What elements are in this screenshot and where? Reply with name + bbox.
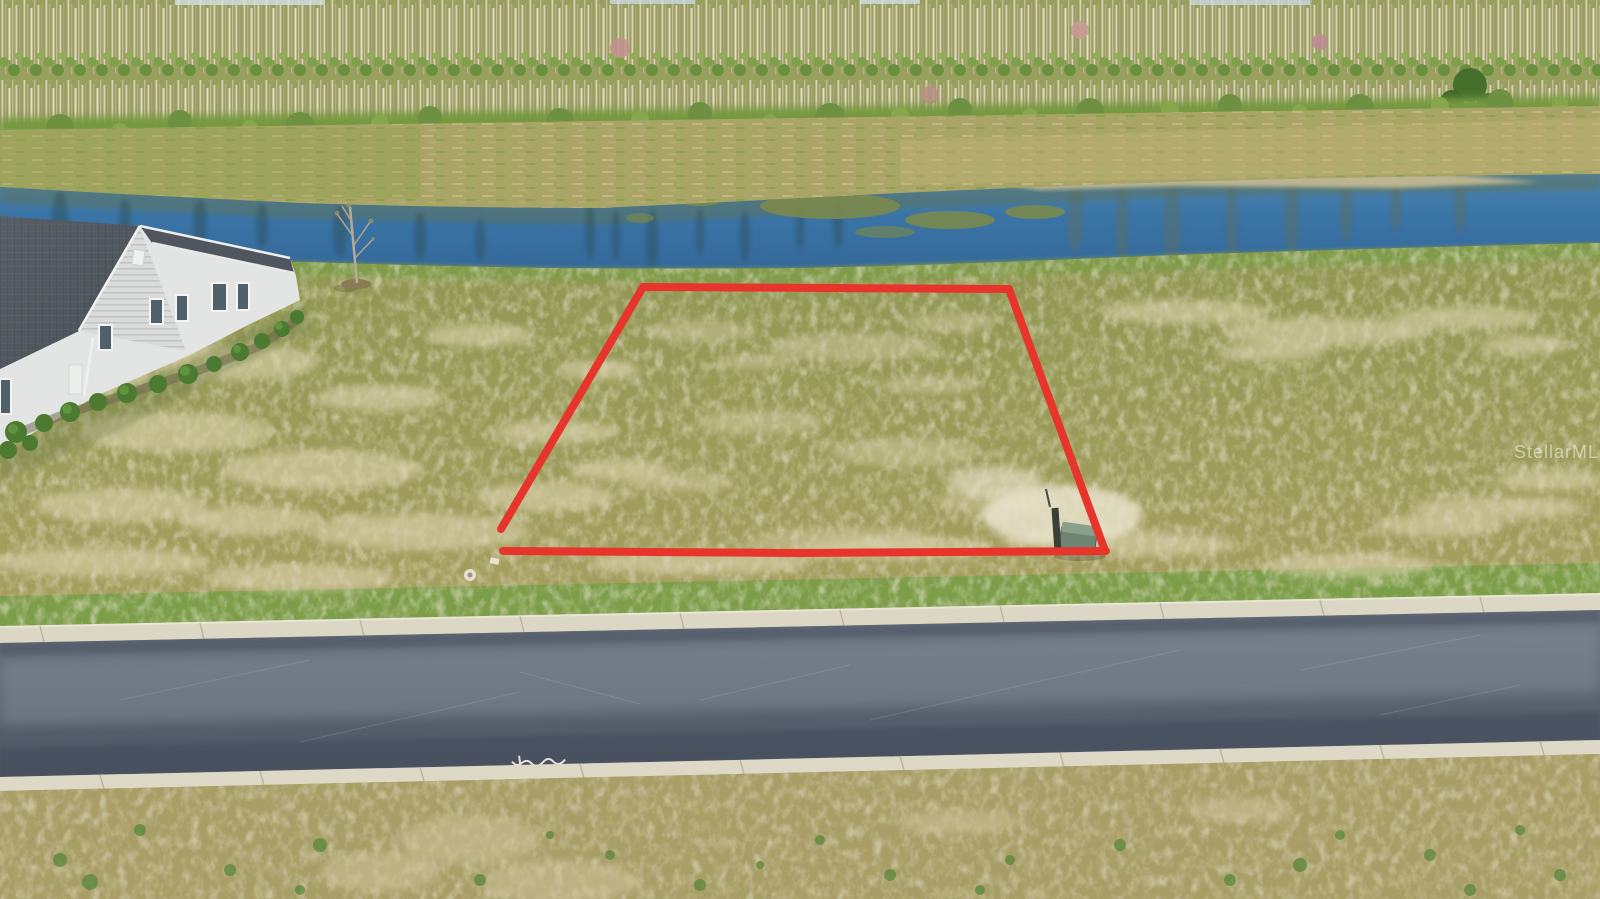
aerial-photo-canvas: StellarMLS [0, 0, 1600, 899]
utility-meter [69, 365, 82, 394]
attic-vent [132, 249, 145, 265]
aerial-photo: StellarMLS [0, 0, 1600, 899]
watermark: StellarMLS [1514, 442, 1600, 462]
lot-outline-bottom [503, 551, 1106, 553]
